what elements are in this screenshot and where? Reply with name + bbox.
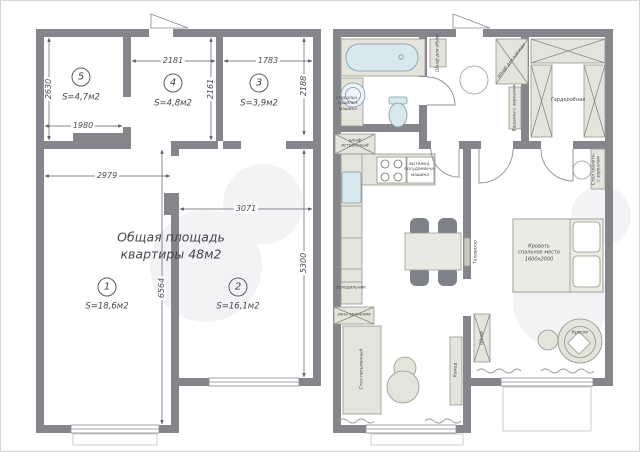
walkin-closet-furniture [531,39,605,137]
room-number-3: 3 [250,74,269,93]
dim-2630: 2630 [45,77,53,101]
dim-5300: 5300 [300,251,308,275]
dim-2181: 2181 [161,57,185,65]
bathroom [341,39,425,127]
room-area-1: S=18,6м2 [85,302,128,313]
dresser-label: Комод [453,363,458,378]
storage-label: зона хранения [337,312,370,317]
tv-label: Телевизор [473,240,478,264]
shoe-cabinet-label: Шкаф для обуви [435,34,440,72]
hall-mirror [460,66,488,94]
room-number-5: 5 [72,68,91,87]
vanity-label: Стол туалетн. с зеркалом [592,153,603,185]
floor-plan-page: 5 S=4,7м2 4 S=4,8м2 3 S=3,9м2 1 S=18,6м2… [0,0,640,452]
dining-set [405,218,461,286]
room-number-1: 1 [98,278,117,297]
room-area-4: S=4,8м2 [154,99,192,110]
balconies [73,387,591,445]
dim-3071: 3071 [234,205,258,213]
dim-2161: 2161 [207,77,215,101]
room-number-2: 2 [229,278,248,297]
fridge [342,172,361,203]
appliance-note-label: вытяжка, посудомоечн. машина [404,162,435,178]
floor-plan-drawing [1,1,640,452]
walkin-closet-label: Гардеробная [551,97,585,103]
vanity-stool [573,161,591,179]
pillow [573,256,600,287]
room-area-2: S=16,1м2 [216,302,259,313]
mirror-hanger-label: Вешалка с зеркалом [512,85,517,132]
linen-wardrobe-label: Шкаф [479,331,484,345]
dim-1980: 1980 [71,122,95,130]
room-area-5: S=4,7м2 [62,93,100,104]
armchair-label: Кресло [572,330,588,335]
total-area-title-line2: квартиры 48м2 [121,244,222,263]
side-table [538,330,558,350]
armchair-living [387,371,419,403]
room-area-3: S=3,9м2 [240,99,278,110]
builtin-wardrobe-label: шкаф встроенный [341,139,368,150]
bathroom-door [427,77,455,105]
closet-door [541,149,573,181]
dim-2979: 2979 [95,172,119,180]
entrance-door-leaf-left [151,14,188,28]
bathtub [346,44,418,71]
bed-label: Кровать спальное место 1600х2000 [518,244,560,263]
tv [464,238,470,266]
pillow [573,222,600,252]
room-number-4: 4 [164,74,183,93]
washer-label: стиральн.- сушильн. машина [336,96,360,112]
desk-label: Стол письменный [359,349,364,389]
fridge-label: холодильник [336,285,366,290]
work-area [343,326,419,414]
dim-6564: 6564 [158,276,166,300]
entrance-door-leaf-right [453,14,490,28]
toilet [389,103,407,127]
dining-table [405,233,461,270]
dim-1783: 1783 [256,57,280,65]
bedroom-door [479,149,513,183]
dim-2188: 2188 [300,74,308,98]
